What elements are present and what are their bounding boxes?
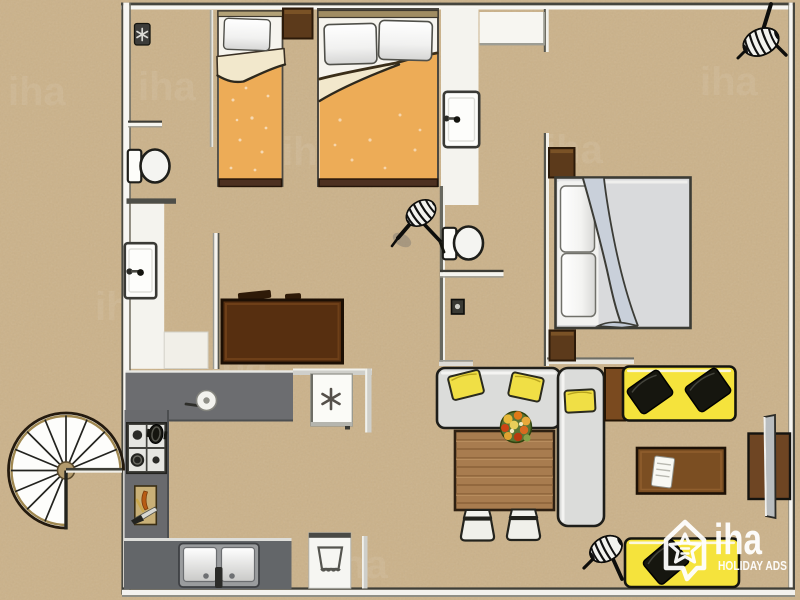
svg-text:iha: iha [8,70,67,114]
svg-text:iha: iha [714,515,762,564]
svg-text:iha: iha [138,65,197,109]
svg-text:HOLIDAY ADS: HOLIDAY ADS [718,558,787,573]
svg-text:iha: iha [700,60,759,104]
